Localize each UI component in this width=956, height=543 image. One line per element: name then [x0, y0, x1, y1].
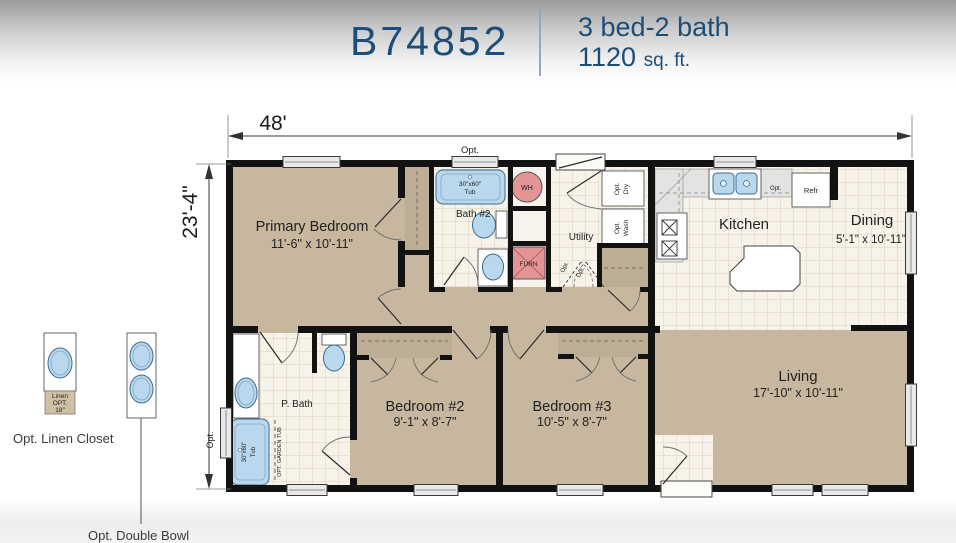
primary-size: 11'-6" x 10'-11" [271, 237, 353, 251]
opt-washer-label1: Opt. [614, 222, 621, 234]
utility-name: Utility [569, 232, 593, 243]
opt-garden-tub-label: OPT. GARDEN TUB [277, 427, 283, 477]
sqft-number: 1120 [578, 42, 636, 72]
sqft-unit: sq. ft. [644, 50, 690, 71]
kitchen-name: Kitchen [719, 216, 769, 233]
pbath-toilet-bowl [324, 345, 345, 371]
opt-washer-label2: Wash [623, 219, 630, 236]
linen-label-3: 18" [55, 407, 65, 414]
double-bowl-caption: Opt. Double Bowl [88, 528, 189, 543]
living-window-2 [822, 485, 868, 496]
dining-window [906, 212, 917, 274]
model-number: B74852 [350, 18, 509, 65]
pbath-toilet-tank [322, 334, 346, 345]
bedroom2-name: Bedroom #2 [386, 399, 465, 415]
bath2-tub-drain [468, 175, 472, 179]
linen-label-1: Linen [52, 393, 68, 400]
bedroom3-closet [558, 333, 648, 357]
pbath-tub-size: 30"x60" [242, 442, 248, 463]
living-name: Living [778, 368, 817, 385]
opt-window-top [452, 157, 498, 168]
pbath-name: P. Bath [281, 399, 313, 410]
pbath-tub-word: Tub [251, 446, 257, 457]
floorplan-page: Opt. Refr 30"x60" Tub [0, 0, 956, 543]
bedroom2-closet [357, 333, 452, 358]
linen-label-2: OPT. [53, 400, 68, 407]
water-heater-label: WH [521, 185, 533, 192]
dining-name: Dining [851, 212, 894, 229]
bath2-name: Bath #2 [456, 209, 491, 220]
entry-door [661, 481, 712, 497]
kitchen-window [714, 157, 756, 168]
pbath-window [287, 485, 327, 496]
opt-window-top-label: Opt. [461, 145, 479, 156]
header: B74852 3 bed-2 bath 1120 sq. ft. [0, 0, 956, 85]
primary-name: Primary Bedroom [256, 219, 369, 235]
header-specs: 3 bed-2 bath 1120 sq. ft. [578, 12, 730, 72]
opt-window-left [221, 408, 232, 458]
pbath-tub [231, 419, 269, 485]
primary-window [283, 157, 340, 168]
bath2-sink [483, 254, 504, 280]
depth-dimension: 23'-4" [179, 185, 202, 239]
sink-drain-left [721, 181, 727, 187]
beds-baths: 3 bed-2 bath [578, 12, 730, 42]
opt-dryer-label2: Dry [623, 183, 630, 194]
bedroom3-size: 10'-5" x 8'-7" [537, 415, 607, 429]
bedroom3-name: Bedroom #3 [533, 399, 612, 415]
bath2-tub-size: 30"x60" [459, 181, 482, 188]
living-window-1 [772, 485, 813, 496]
refrigerator-label: Refr [804, 186, 819, 195]
sink-drain-right [744, 181, 750, 187]
bath2-toilet-tank [496, 211, 507, 238]
bath2-tub-word: Tub [465, 189, 476, 196]
width-dimension: 48' [259, 112, 286, 135]
header-divider [539, 8, 541, 76]
double-bowl-sink-1 [130, 342, 153, 370]
square-footage: 1120 sq. ft. [578, 42, 730, 72]
opt-window-left-label: Opt. [205, 431, 215, 448]
dining-size: 5'-1" x 10'-11" [836, 234, 906, 246]
bedroom2-window [414, 485, 458, 496]
bedroom2-size: 9'-1" x 8'-7" [394, 415, 457, 429]
opt-dishwasher-label: Opt. [770, 186, 782, 192]
option-insets: Linen OPT. 18" Opt. Linen Closet Opt. Do… [13, 333, 189, 543]
linen-caption: Opt. Linen Closet [13, 431, 114, 446]
furnace-label: FURN [519, 261, 537, 268]
living-window-right [906, 384, 917, 446]
opt-dryer-label1: Opt. [614, 183, 621, 195]
bedroom3-window [557, 485, 603, 496]
linen-inset-sink [48, 348, 72, 378]
living-size: 17'-10" x 10'-11" [753, 386, 843, 400]
double-bowl-sink-2 [130, 375, 153, 403]
